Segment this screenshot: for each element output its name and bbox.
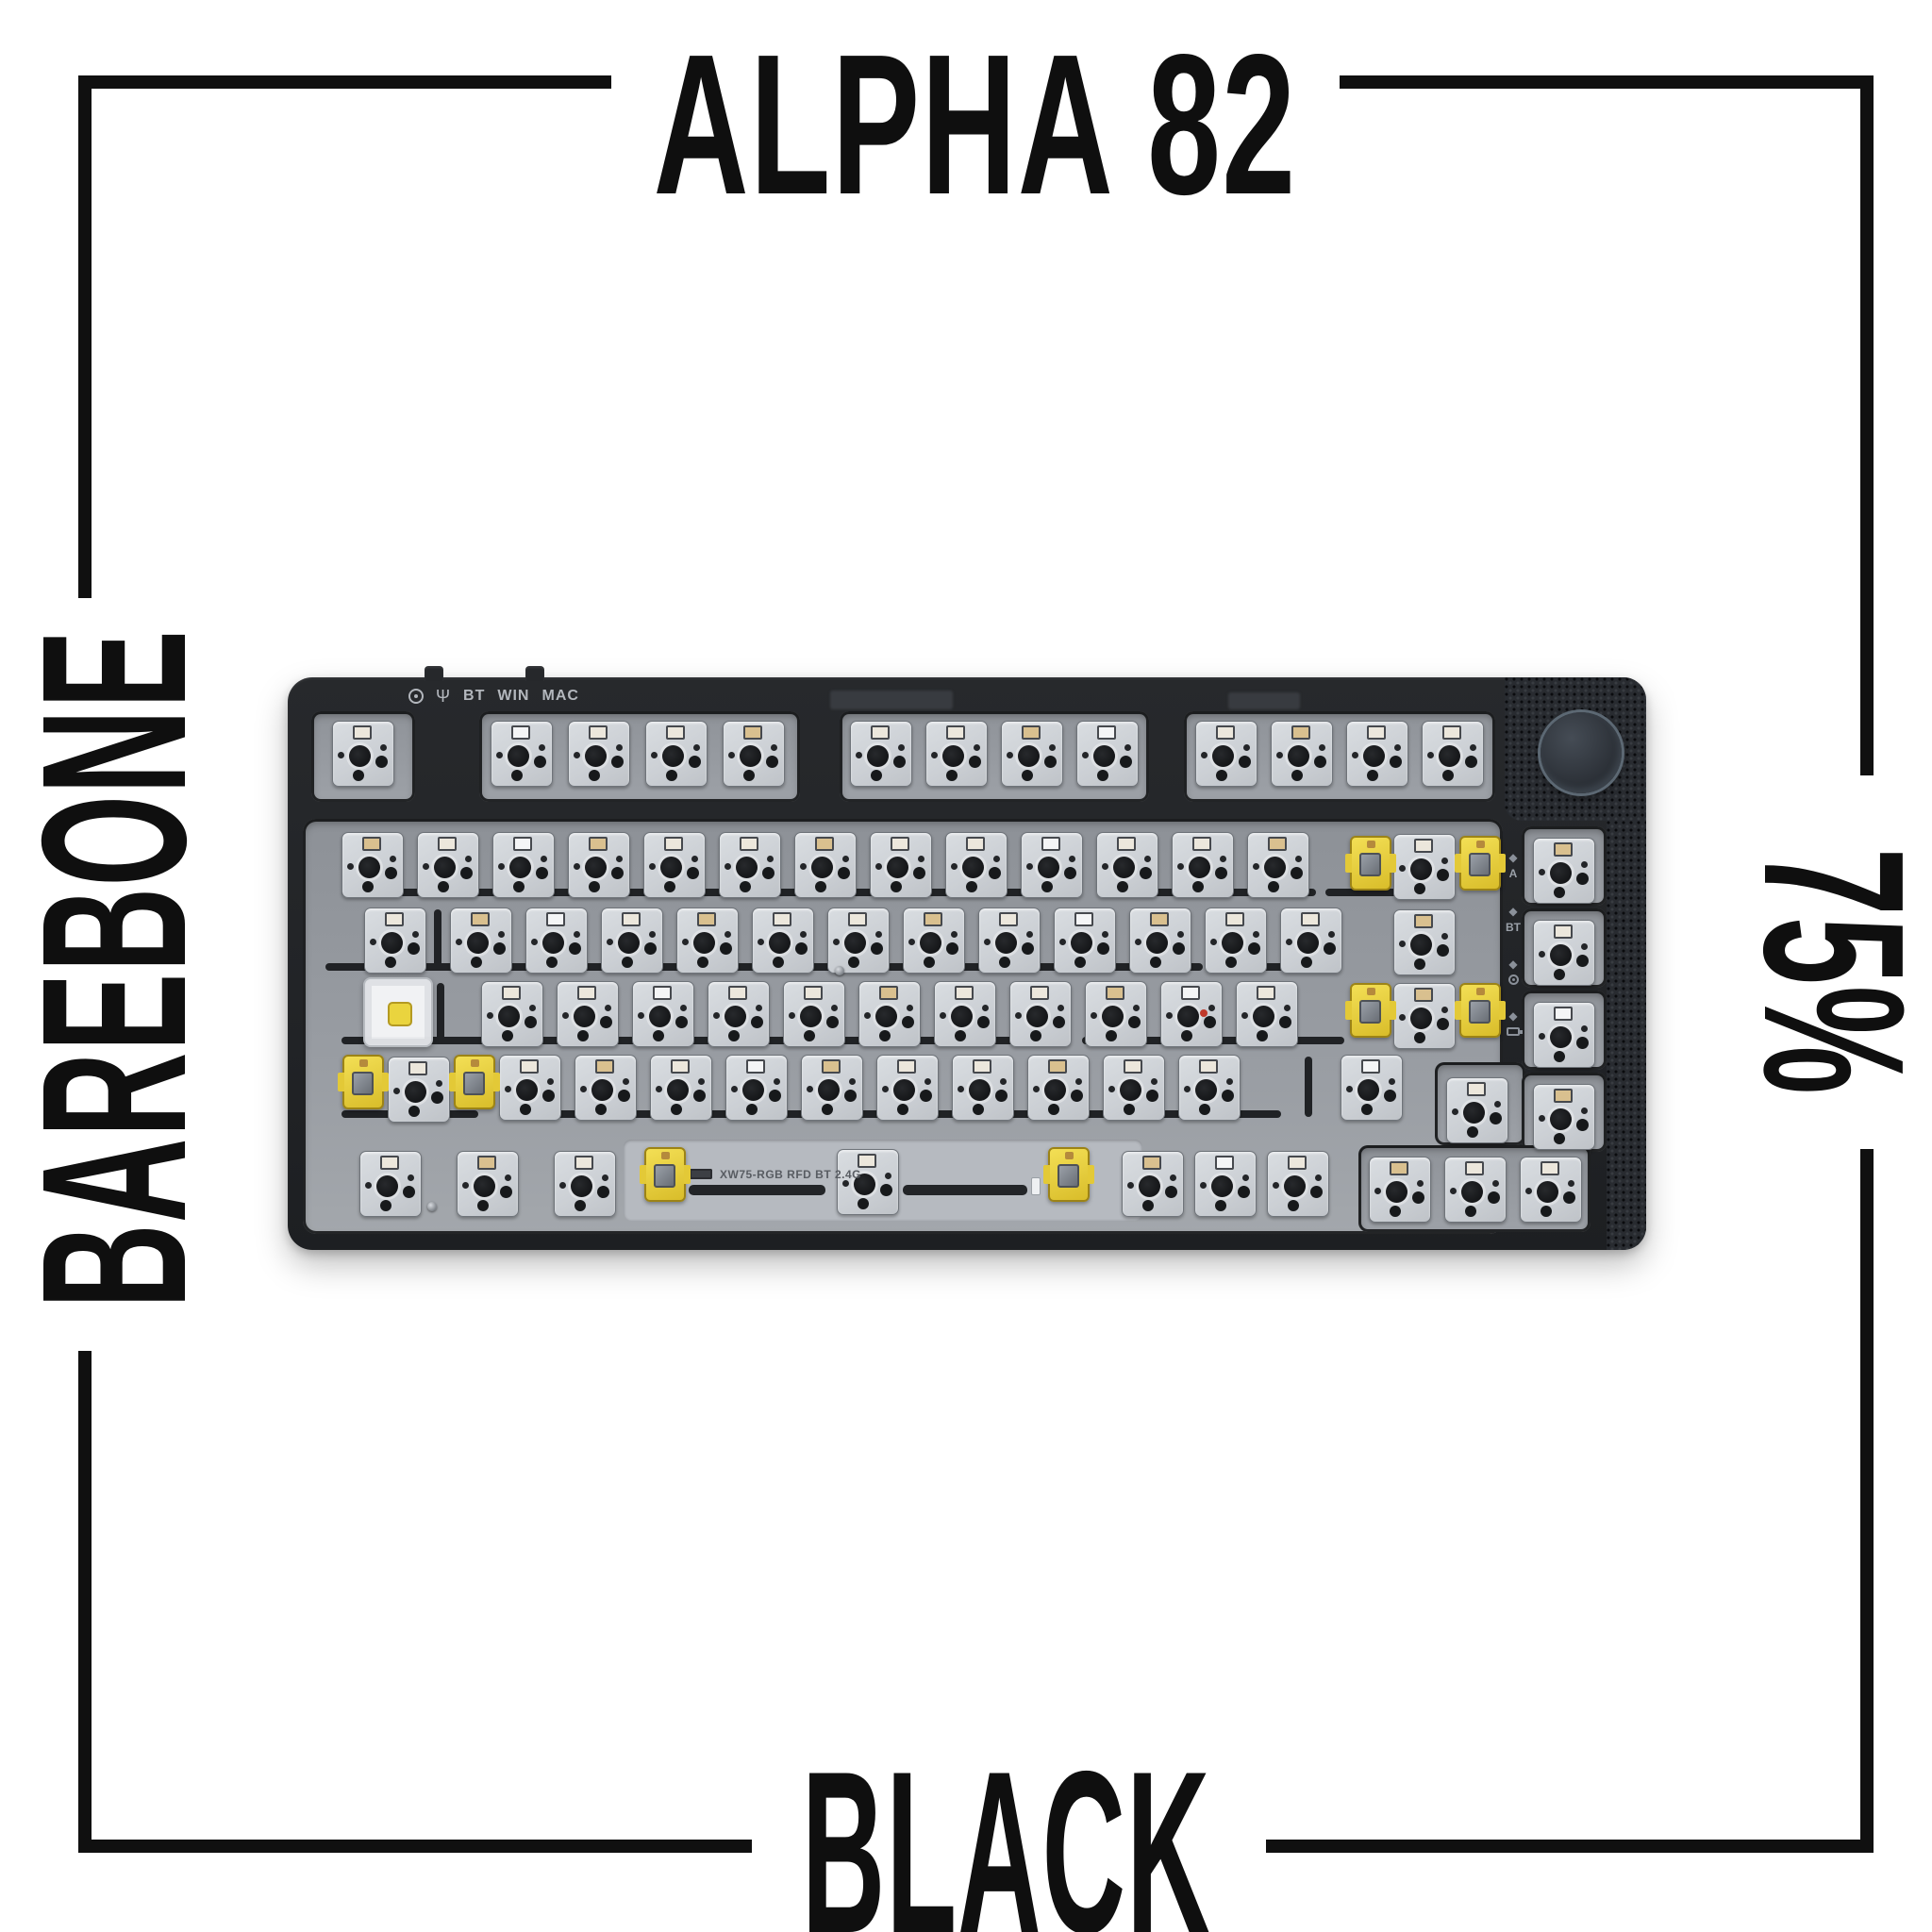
switch-socket xyxy=(481,981,543,1047)
switch-socket xyxy=(388,1057,450,1123)
switch-socket xyxy=(554,1151,616,1217)
switch-socket xyxy=(1346,721,1408,787)
switch-socket xyxy=(945,832,1008,898)
switch-socket xyxy=(858,981,921,1047)
usb-icon: Ψ xyxy=(436,689,451,704)
switch-socket xyxy=(752,908,814,974)
plate-screw xyxy=(835,966,844,975)
switch-socket xyxy=(1172,832,1234,898)
switch-socket xyxy=(1271,721,1333,787)
switch-socket xyxy=(1001,721,1063,787)
switch-socket xyxy=(1122,1151,1184,1217)
clear-switch xyxy=(363,977,433,1047)
switch-socket xyxy=(1236,981,1298,1047)
switch-socket xyxy=(1446,1077,1508,1143)
switch-socket xyxy=(794,832,857,898)
frame-line xyxy=(1266,1840,1874,1853)
switch-socket xyxy=(1533,1084,1595,1150)
stabilizer-slot xyxy=(903,1185,1027,1195)
switch-socket xyxy=(450,908,512,974)
rf-icon xyxy=(1508,974,1519,985)
switch-socket xyxy=(645,721,708,787)
switch-socket xyxy=(1393,983,1456,1049)
switch-socket xyxy=(1054,908,1116,974)
right-label-size: 75% xyxy=(1734,848,1932,1095)
switch-socket xyxy=(1178,1055,1241,1121)
switch-socket xyxy=(1076,721,1139,787)
connector-pad xyxy=(690,1169,712,1179)
yellow-switch-housing xyxy=(454,1055,495,1109)
switch-socket xyxy=(1085,981,1147,1047)
switch-socket xyxy=(568,721,630,787)
switch-socket xyxy=(499,1055,561,1121)
plate-screw xyxy=(427,1202,437,1211)
status-indicator: ◆BT xyxy=(1499,906,1527,933)
switch-socket xyxy=(1369,1157,1431,1223)
switch-socket xyxy=(676,908,739,974)
plate-slot-vertical xyxy=(437,983,444,1043)
switch-socket xyxy=(827,908,890,974)
side-toggle-switch xyxy=(425,666,443,681)
plate-slot-vertical xyxy=(1305,1057,1312,1117)
switch-socket xyxy=(1195,721,1257,787)
switch-socket xyxy=(801,1055,863,1121)
wireless-dongle-icon xyxy=(408,689,424,704)
switch-socket xyxy=(557,981,619,1047)
stabilizer-insert xyxy=(1031,1177,1041,1195)
switch-socket xyxy=(1341,1055,1403,1121)
switch-socket xyxy=(1533,920,1595,986)
switch-socket xyxy=(978,908,1041,974)
switch-socket xyxy=(417,832,479,898)
win-label: WIN xyxy=(497,688,529,705)
frame-line xyxy=(1340,75,1874,89)
left-label-barebone: BAREBONE xyxy=(12,629,218,1308)
volume-knob xyxy=(1541,712,1622,793)
yellow-switch-housing xyxy=(644,1147,686,1202)
switch-socket xyxy=(708,981,770,1047)
switch-socket xyxy=(341,832,404,898)
switch-socket xyxy=(601,908,663,974)
status-indicator: ◆A xyxy=(1499,852,1527,879)
switch-socket xyxy=(1096,832,1158,898)
frame-line xyxy=(78,75,92,598)
switch-socket xyxy=(364,908,426,974)
yellow-switch-housing xyxy=(1048,1147,1090,1202)
frame-line xyxy=(78,75,611,89)
switch-socket xyxy=(1194,1151,1257,1217)
product-name-title: ALPHA 82 xyxy=(654,25,1297,225)
mac-label: MAC xyxy=(541,688,578,705)
switch-socket xyxy=(568,832,630,898)
switch-socket xyxy=(1027,1055,1090,1121)
switch-socket xyxy=(332,721,394,787)
switch-socket xyxy=(632,981,694,1047)
plate-slot-vertical xyxy=(434,909,441,970)
pcb-print-text: XW75-RGB RFD BT 2.4G xyxy=(720,1168,861,1181)
frame-line xyxy=(1860,1149,1874,1853)
switch-socket xyxy=(725,1055,788,1121)
switch-socket xyxy=(1533,838,1595,904)
switch-socket xyxy=(1393,834,1456,900)
switch-socket xyxy=(1103,1055,1165,1121)
switch-socket xyxy=(1021,832,1083,898)
switch-socket xyxy=(870,832,932,898)
switch-socket xyxy=(1129,908,1191,974)
switch-socket xyxy=(783,981,845,1047)
yellow-switch-housing xyxy=(1459,983,1501,1038)
switch-socket xyxy=(1520,1157,1582,1223)
frame-line xyxy=(1860,75,1874,775)
switch-socket xyxy=(1444,1157,1507,1223)
switch-socket xyxy=(952,1055,1014,1121)
switch-socket xyxy=(359,1151,422,1217)
yellow-switch-housing xyxy=(1350,983,1391,1038)
color-label-black: BLACK xyxy=(802,1737,1211,1932)
frame-line xyxy=(78,1840,752,1853)
frame-line xyxy=(78,1351,92,1853)
status-indicator: ◆ xyxy=(1499,1010,1527,1041)
product-image-canvas: ALPHA 82 BAREBONE 75% BLACK Ψ BT WIN MAC… xyxy=(0,0,1932,1932)
mode-labels: Ψ BT WIN MAC xyxy=(408,685,579,708)
switch-socket xyxy=(650,1055,712,1121)
smd-led-dot xyxy=(1200,1009,1207,1017)
switch-socket xyxy=(876,1055,939,1121)
switch-socket xyxy=(1267,1151,1329,1217)
switch-socket xyxy=(575,1055,637,1121)
switch-socket xyxy=(492,832,555,898)
switch-socket xyxy=(1422,721,1484,787)
switch-socket xyxy=(723,721,785,787)
yellow-switch-housing xyxy=(342,1055,384,1109)
switch-socket xyxy=(1393,909,1456,975)
bt-label: BT xyxy=(463,688,485,705)
status-indicator: ◆ xyxy=(1499,958,1527,990)
switch-socket xyxy=(1205,908,1267,974)
switch-socket xyxy=(1009,981,1072,1047)
yellow-switch-housing xyxy=(1350,836,1391,891)
switch-socket xyxy=(457,1151,519,1217)
bezel-ghost-print xyxy=(830,691,953,709)
side-toggle-switch xyxy=(525,666,544,681)
switch-socket xyxy=(1160,981,1223,1047)
switch-socket xyxy=(934,981,996,1047)
switch-socket xyxy=(837,1149,899,1215)
bottom-label-wrap: BLACK xyxy=(63,1737,1932,1932)
switch-socket xyxy=(925,721,988,787)
switch-socket xyxy=(491,721,553,787)
yellow-switch-housing xyxy=(1459,836,1501,891)
title-wrap: ALPHA 82 xyxy=(9,25,1932,225)
switch-socket xyxy=(719,832,781,898)
switch-socket xyxy=(643,832,706,898)
barebone-keyboard: Ψ BT WIN MAC ◆A◆BT◆◆XW75-RGB RFD BT 2.4G xyxy=(288,677,1646,1250)
switch-socket xyxy=(1280,908,1342,974)
switch-socket xyxy=(1247,832,1309,898)
switch-socket xyxy=(1533,1002,1595,1068)
switch-socket xyxy=(850,721,912,787)
switch-socket xyxy=(525,908,588,974)
switch-socket xyxy=(903,908,965,974)
battery-icon xyxy=(1507,1027,1520,1036)
stabilizer-slot xyxy=(689,1185,825,1195)
bezel-ghost-print xyxy=(1228,692,1300,709)
